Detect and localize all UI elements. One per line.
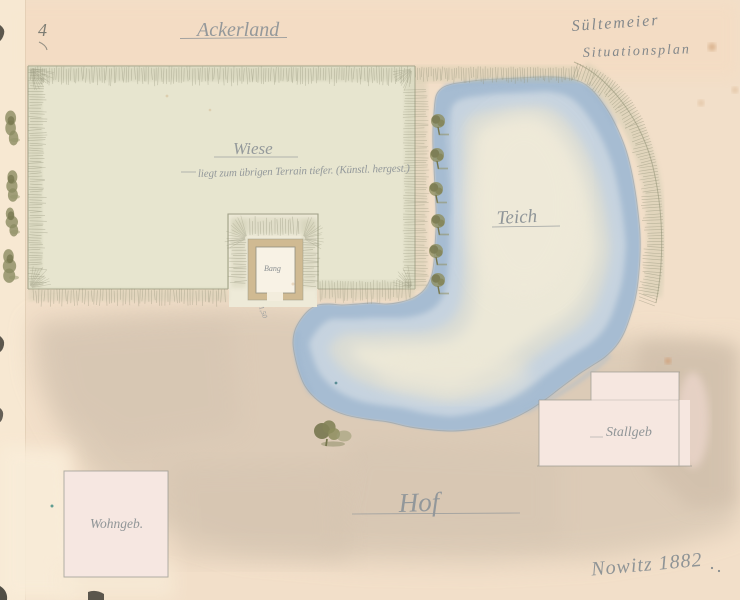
svg-text:4: 4 — [38, 20, 47, 40]
svg-text:Wohngeb.: Wohngeb. — [90, 516, 143, 531]
svg-text:Bang: Bang — [264, 264, 281, 273]
svg-text:Teich: Teich — [496, 206, 538, 229]
svg-text:Wiese: Wiese — [233, 139, 273, 158]
svg-text:Stallgeb: Stallgeb — [606, 425, 652, 440]
